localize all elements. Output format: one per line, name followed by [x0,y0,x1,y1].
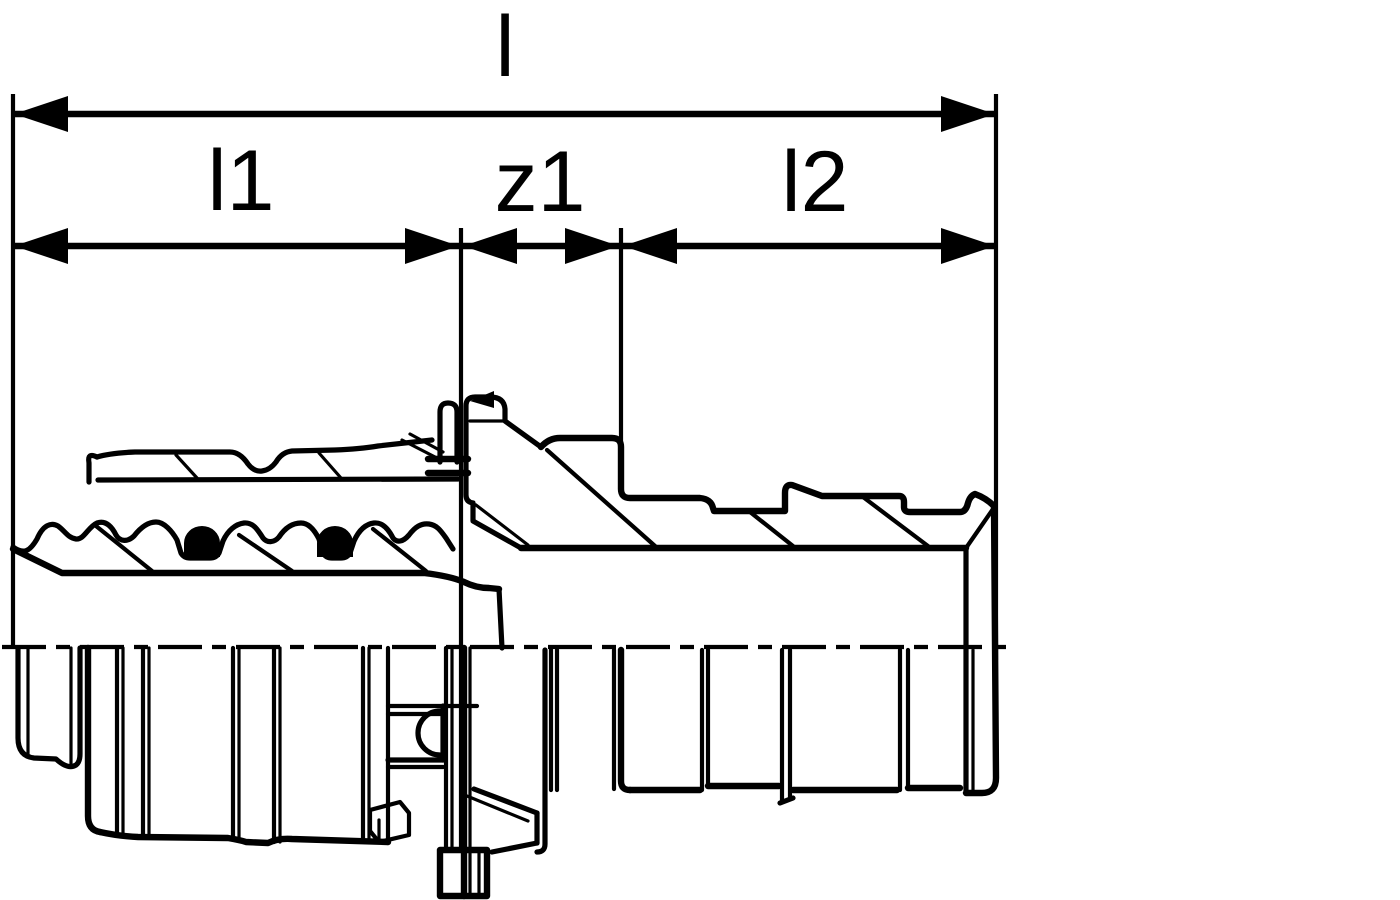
clip-window [418,711,440,755]
fitting-cross-section [13,391,996,793]
clip-mechanism [370,648,557,896]
bore-chamfer [966,509,993,548]
hatch-line [319,453,341,478]
body-profile [541,438,994,512]
arrowhead-left-icon [463,228,517,264]
arrowhead-left-icon [14,96,68,132]
press-fitting-dimension-drawing: l l1 z1 l2 [0,0,1400,900]
o-ring [184,526,220,557]
arrowhead-right-icon [405,228,459,264]
body-section [521,438,996,793]
arrowhead-right-icon [941,228,995,264]
dimension-label-l: l [495,0,514,95]
technical-drawing-page: l l1 z1 l2 [0,0,1400,900]
spigot-end-face [966,506,996,793]
hatch-line [373,529,426,571]
fitting-exterior-view [18,648,973,896]
arrowhead-right-icon [941,96,995,132]
dimension-label-z1: z1 [495,134,586,230]
dimension-line-segments: l1 z1 l2 [14,133,995,264]
sleeve-exterior [88,648,388,843]
hatch-line [96,526,152,571]
sleeve-end-cap [18,648,80,767]
socket-face [466,474,521,548]
arrowhead-left-icon [623,228,677,264]
hatch-line [863,497,928,546]
arrowhead-left-icon [14,228,68,264]
dimension-label-l1: l1 [208,133,275,229]
hatch-line [176,455,197,478]
dimension-line-overall: l [14,0,995,132]
hatch-wedge [470,391,494,408]
dimension-system: l l1 z1 l2 [13,0,996,852]
body-exterior [614,650,973,803]
hatch-line [750,512,793,546]
press-sleeve-section [13,522,502,648]
pipe-section [89,440,458,482]
o-ring [317,526,353,557]
dimension-label-l2: l2 [782,134,849,230]
arrowhead-right-icon [565,228,619,264]
